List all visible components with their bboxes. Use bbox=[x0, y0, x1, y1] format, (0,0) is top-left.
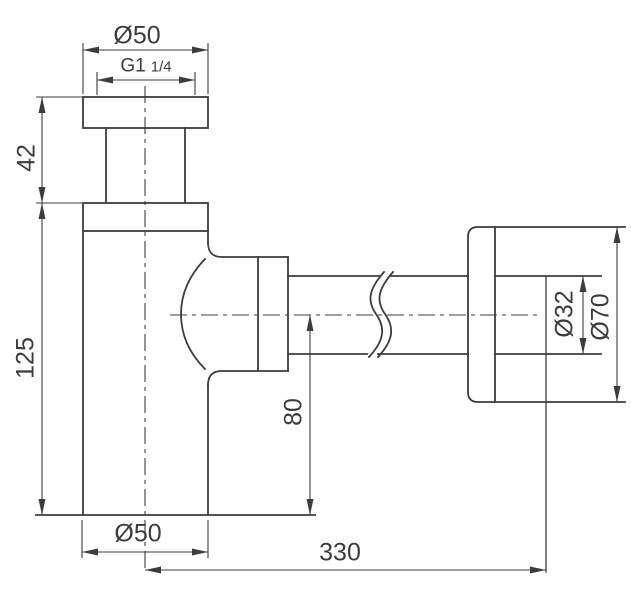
wall-distance-label: 330 bbox=[319, 541, 361, 566]
dimension-outlet-center-height bbox=[307, 315, 314, 515]
dimension-wall-distance bbox=[145, 567, 546, 574]
pipe-diameter-label: Ø32 bbox=[553, 290, 578, 337]
dimension-pipe-diameter bbox=[580, 276, 587, 354]
thread-size-value: G1 bbox=[120, 57, 145, 76]
dimension-flange-diameter bbox=[614, 227, 621, 402]
inlet-diameter-label: Ø50 bbox=[113, 24, 160, 49]
thread-fraction-value: 1/4 bbox=[151, 60, 172, 75]
thread-size-label: G1 1/4 bbox=[120, 57, 171, 76]
body-diameter-label: Ø50 bbox=[114, 522, 161, 547]
outlet-center-height-label: 80 bbox=[282, 398, 307, 426]
dimension-body-height bbox=[39, 203, 46, 515]
inlet-height-label: 42 bbox=[15, 144, 40, 172]
outlet-joint bbox=[181, 243, 288, 385]
technical-drawing-canvas: Ø50 G1 1/4 42 125 Ø50 80 330 Ø32 Ø70 bbox=[0, 0, 631, 600]
bottle-trap-drawing bbox=[0, 0, 631, 600]
dimension-inlet-height bbox=[36, 97, 83, 203]
wall-flange bbox=[468, 227, 625, 572]
flange-diameter-label: Ø70 bbox=[589, 293, 614, 340]
outlet-bulge bbox=[181, 259, 205, 369]
trap-body bbox=[36, 231, 315, 515]
body-height-label: 125 bbox=[14, 337, 39, 379]
